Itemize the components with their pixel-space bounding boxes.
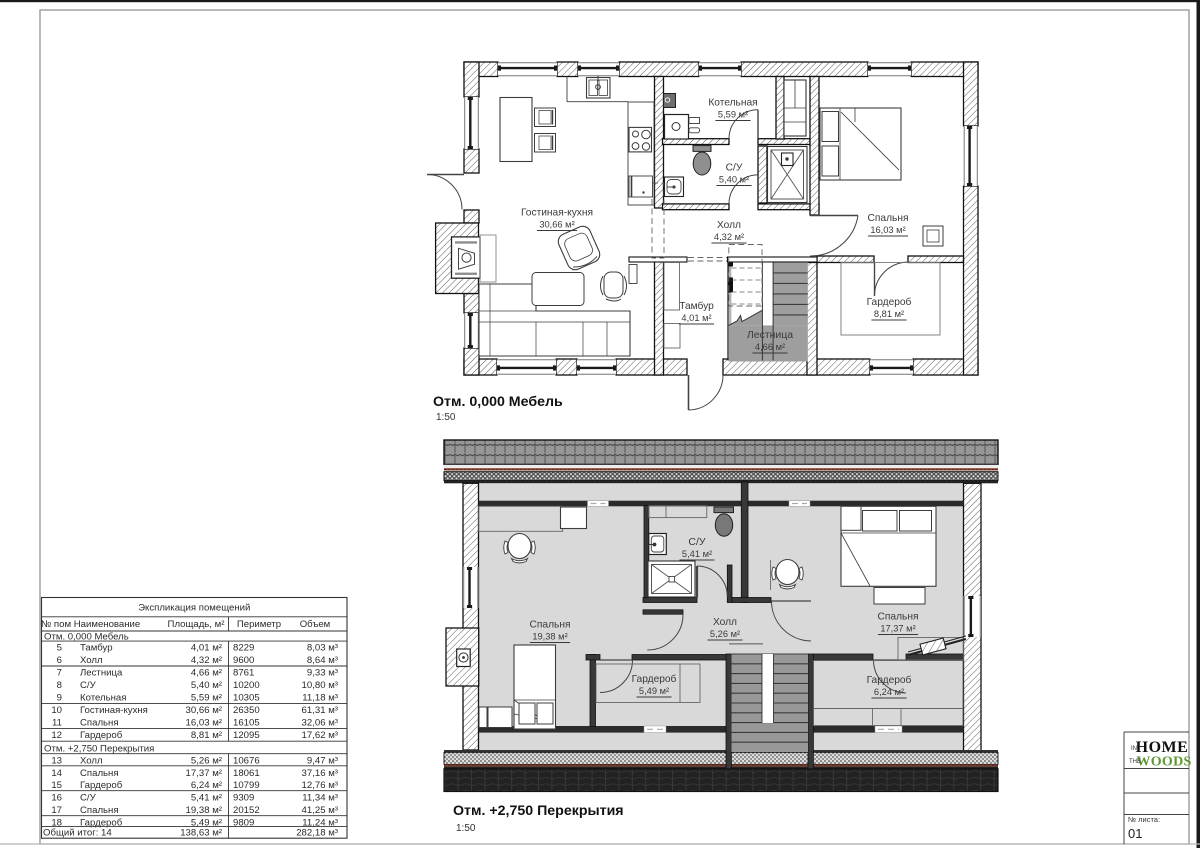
svg-text:12: 12 <box>51 730 62 741</box>
svg-text:10: 10 <box>51 705 62 716</box>
svg-text:16,03 м²: 16,03 м² <box>186 717 223 728</box>
svg-text:11,18 м³: 11,18 м³ <box>302 692 338 703</box>
svg-text:16,03 м²: 16,03 м² <box>870 225 905 235</box>
svg-text:Объем: Объем <box>300 619 331 630</box>
svg-text:5,40 м²: 5,40 м² <box>191 680 223 691</box>
svg-text:10799: 10799 <box>233 780 260 791</box>
svg-text:Спальня: Спальня <box>80 805 119 816</box>
svg-text:8,03 м³: 8,03 м³ <box>307 643 338 654</box>
svg-text:6: 6 <box>57 655 62 666</box>
svg-text:Отм. 0,000 Мебель: Отм. 0,000 Мебель <box>433 394 563 410</box>
svg-text:Гардероб: Гардероб <box>80 780 123 791</box>
svg-text:13: 13 <box>51 755 62 766</box>
svg-text:Наименование: Наименование <box>74 619 141 630</box>
svg-text:Периметр: Периметр <box>237 619 281 630</box>
svg-text:Площадь, м²: Площадь, м² <box>168 619 226 630</box>
svg-text:4,32 м²: 4,32 м² <box>714 232 744 242</box>
svg-text:14: 14 <box>51 768 62 779</box>
svg-text:12095: 12095 <box>233 730 260 741</box>
svg-text:Холл: Холл <box>713 617 737 628</box>
svg-text:18061: 18061 <box>233 768 260 779</box>
svg-text:9600: 9600 <box>233 655 254 666</box>
svg-text:37,16 м³: 37,16 м³ <box>302 768 338 779</box>
svg-text:Холл: Холл <box>80 655 103 666</box>
svg-text:8761: 8761 <box>233 668 254 679</box>
svg-text:5,26 м²: 5,26 м² <box>710 629 740 639</box>
svg-text:WOODS: WOODS <box>1136 755 1191 770</box>
svg-text:4,66 м²: 4,66 м² <box>755 342 785 352</box>
svg-text:1:50: 1:50 <box>436 412 456 423</box>
svg-text:41,25 м³: 41,25 м³ <box>302 805 338 816</box>
svg-text:Спальня: Спальня <box>530 620 571 631</box>
svg-text:8,81 м²: 8,81 м² <box>191 730 223 741</box>
svg-text:7: 7 <box>57 668 62 679</box>
svg-text:IN: IN <box>1131 746 1137 752</box>
svg-text:9,47 м³: 9,47 м³ <box>307 755 338 766</box>
svg-text:17,62 м³: 17,62 м³ <box>302 730 338 741</box>
svg-text:9: 9 <box>57 692 62 703</box>
svg-text:Гардероб: Гардероб <box>632 673 677 685</box>
svg-text:19,38 м²: 19,38 м² <box>532 632 567 642</box>
svg-text:4,01 м²: 4,01 м² <box>681 313 711 323</box>
svg-text:Котельная: Котельная <box>708 98 757 109</box>
svg-text:11: 11 <box>52 717 62 728</box>
svg-text:16105: 16105 <box>233 717 260 728</box>
svg-text:17: 17 <box>51 805 62 816</box>
svg-text:С/У: С/У <box>688 536 706 548</box>
svg-text:5,41 м²: 5,41 м² <box>191 793 223 804</box>
svg-text:Спальня: Спальня <box>80 717 119 728</box>
svg-text:12,76 м³: 12,76 м³ <box>302 780 338 791</box>
svg-text:Отм. +2,750 Перекрытия: Отм. +2,750 Перекрытия <box>44 744 154 755</box>
svg-text:15: 15 <box>51 780 62 791</box>
svg-text:17,37 м²: 17,37 м² <box>186 768 223 779</box>
svg-text:5,40 м²: 5,40 м² <box>719 175 749 185</box>
svg-text:Спальня: Спальня <box>80 768 119 779</box>
svg-text:Спальня: Спальня <box>868 213 909 224</box>
svg-text:HOME: HOME <box>1136 739 1189 756</box>
svg-text:5,59 м²: 5,59 м² <box>718 110 748 120</box>
svg-text:№ листа:: № листа: <box>1128 815 1160 824</box>
svg-text:Холл: Холл <box>717 220 741 231</box>
svg-text:Гостиная-кухня: Гостиная-кухня <box>80 705 148 716</box>
svg-text:Гардероб: Гардероб <box>867 674 912 686</box>
svg-text:30,66 м²: 30,66 м² <box>539 220 574 230</box>
svg-text:Лестница: Лестница <box>80 668 123 679</box>
svg-text:6,24 м²: 6,24 м² <box>874 687 904 697</box>
svg-text:Тамбур: Тамбур <box>679 300 714 312</box>
svg-text:5,41 м²: 5,41 м² <box>682 549 712 559</box>
svg-text:8: 8 <box>57 680 62 691</box>
svg-text:Гардероб: Гардероб <box>867 296 912 308</box>
svg-text:16: 16 <box>51 793 62 804</box>
svg-text:10,80 м³: 10,80 м³ <box>302 680 338 691</box>
svg-text:5,26 м²: 5,26 м² <box>191 755 223 766</box>
svg-text:Гардероб: Гардероб <box>80 730 123 741</box>
svg-text:Тамбур: Тамбур <box>80 643 113 654</box>
svg-text:9,33 м³: 9,33 м³ <box>307 668 338 679</box>
svg-text:THE: THE <box>1129 759 1141 765</box>
svg-text:11,34 м³: 11,34 м³ <box>302 793 338 804</box>
svg-text:8,81 м²: 8,81 м² <box>874 309 904 319</box>
svg-text:5: 5 <box>57 643 62 654</box>
svg-text:С/У: С/У <box>80 680 97 691</box>
svg-text:№ пом: № пом <box>41 619 71 630</box>
svg-text:30,66 м²: 30,66 м² <box>186 705 223 716</box>
svg-text:9309: 9309 <box>233 793 254 804</box>
svg-text:9809: 9809 <box>233 818 254 829</box>
svg-text:8,64 м³: 8,64 м³ <box>307 655 338 666</box>
svg-text:10200: 10200 <box>233 680 260 691</box>
svg-text:Экспликация помещений: Экспликация помещений <box>138 603 250 614</box>
svg-text:10676: 10676 <box>233 755 260 766</box>
svg-text:20152: 20152 <box>233 805 260 816</box>
svg-text:19,38 м²: 19,38 м² <box>186 805 223 816</box>
svg-text:5,59 м²: 5,59 м² <box>191 692 223 703</box>
svg-text:Лестница: Лестница <box>747 329 793 341</box>
svg-text:Гостиная-кухня: Гостиная-кухня <box>521 208 593 219</box>
svg-text:Отм. +2,750 Перекрытия: Отм. +2,750 Перекрытия <box>453 803 624 819</box>
svg-text:17,37 м²: 17,37 м² <box>880 624 915 634</box>
svg-text:6,24 м²: 6,24 м² <box>191 780 223 791</box>
svg-text:1:50: 1:50 <box>456 823 476 834</box>
svg-text:С/У: С/У <box>726 163 743 174</box>
svg-text:26350: 26350 <box>233 705 260 716</box>
svg-text:Холл: Холл <box>80 755 103 766</box>
svg-text:138,63 м²: 138,63 м² <box>180 828 223 839</box>
svg-text:32,06 м³: 32,06 м³ <box>302 717 338 728</box>
svg-text:282,18 м³: 282,18 м³ <box>296 828 338 839</box>
svg-text:10305: 10305 <box>233 692 260 703</box>
svg-text:Спальня: Спальня <box>878 612 919 623</box>
svg-text:Отм. 0,000 Мебель: Отм. 0,000 Мебель <box>44 632 129 643</box>
svg-text:С/У: С/У <box>80 793 97 804</box>
svg-text:4,01 м²: 4,01 м² <box>191 643 223 654</box>
svg-text:01: 01 <box>1128 826 1142 841</box>
svg-text:61,31 м³: 61,31 м³ <box>302 705 338 716</box>
svg-text:Общий итог: 14: Общий итог: 14 <box>43 828 112 839</box>
svg-text:Котельная: Котельная <box>80 692 126 703</box>
svg-text:5,49 м²: 5,49 м² <box>639 686 669 696</box>
svg-text:4,66 м²: 4,66 м² <box>191 668 223 679</box>
svg-text:4,32 м²: 4,32 м² <box>191 655 223 666</box>
svg-text:8229: 8229 <box>233 643 254 654</box>
